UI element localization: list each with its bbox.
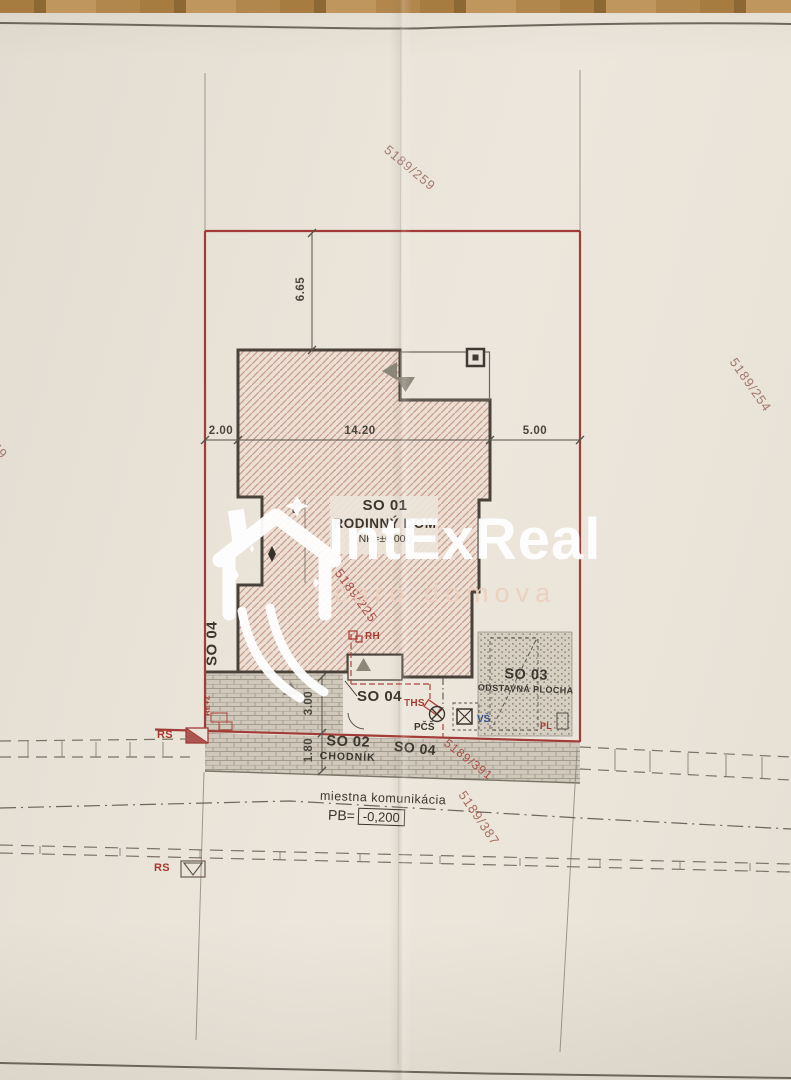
so01-level: NP=±0,000 xyxy=(330,533,440,546)
sidewalk-so02-label: SO 02 CHODNÍK xyxy=(315,732,380,765)
pb-prefix: PB= xyxy=(328,807,355,824)
benchmark-label: PB= -0,200 xyxy=(328,807,405,827)
dim-sidewalk-width: 1.80 xyxy=(303,730,315,770)
rs-label-bottom: RS xyxy=(154,862,170,874)
site-plan-photo: 5189/259 5189/254 5189/49 5189/225 5189/… xyxy=(0,0,791,1080)
dim-side-right: 5.00 xyxy=(514,425,556,437)
dim-notch: 85 xyxy=(292,488,303,528)
dim-side-left: 2.00 xyxy=(200,425,242,437)
so02-code: SO 02 xyxy=(316,732,381,752)
dim-building-width: 14.20 xyxy=(336,425,384,437)
vs-shaft-symbol xyxy=(453,703,479,730)
building-so01-label: SO 01 RODINNÝ DOM NP=±0,000 xyxy=(330,497,440,546)
rs-label-top: RS xyxy=(157,729,173,741)
dim-front-setback: 6.65 xyxy=(295,269,307,309)
so01-code: SO 01 xyxy=(330,497,440,516)
parking-so03-label: SO 03 ODSTAVNÁ PLOCHA xyxy=(478,664,575,697)
rs-valve-symbol-top xyxy=(186,728,208,743)
rez-label: RE+Z xyxy=(203,686,212,726)
so04-label-courtyard: SO 04 xyxy=(357,688,402,705)
so01-name: RODINNÝ DOM xyxy=(330,516,440,533)
so04-label-left: SO 04 xyxy=(204,614,221,674)
pl-label: PL xyxy=(540,721,552,731)
rh-label: RH xyxy=(365,631,380,642)
vs-label: VŠ xyxy=(477,714,490,725)
pcs-label: PČŠ xyxy=(414,722,435,733)
dim-rear-yard: 3.00 xyxy=(303,683,315,723)
pb-value: -0,200 xyxy=(358,808,405,827)
ths-label: THS xyxy=(404,698,425,709)
corner-square-symbol xyxy=(467,349,484,366)
so02-name: CHODNÍK xyxy=(315,750,379,765)
